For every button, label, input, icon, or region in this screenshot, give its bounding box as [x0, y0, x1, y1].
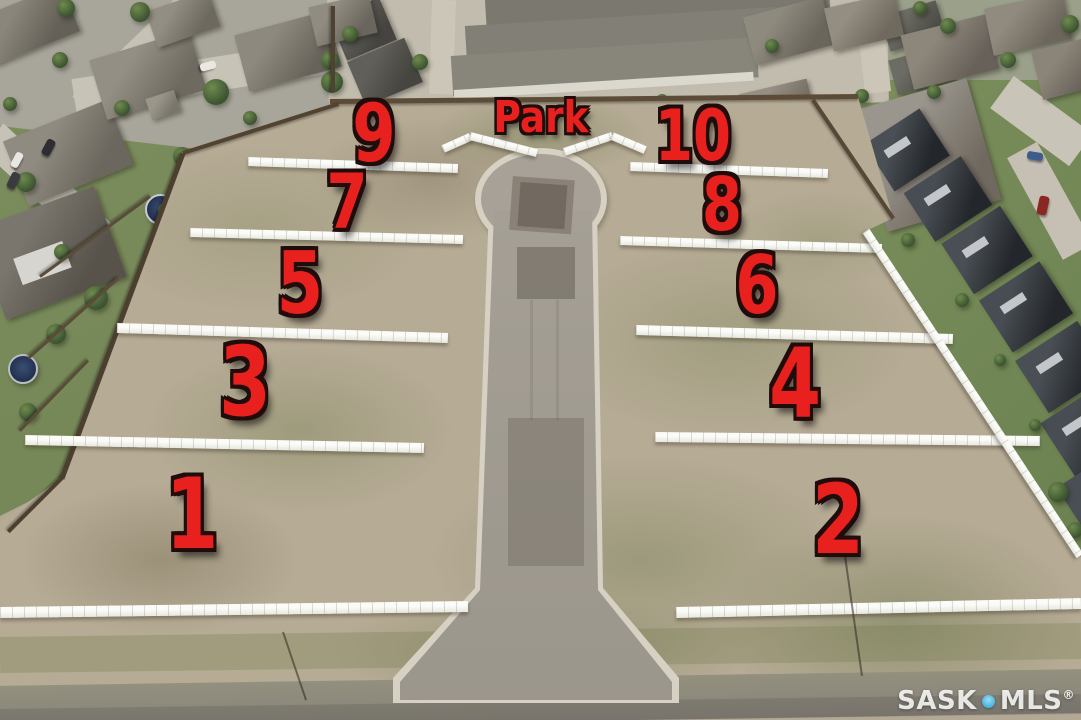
lot-number-4: 4 — [769, 336, 821, 432]
tree — [412, 54, 428, 70]
tree — [1000, 52, 1016, 68]
tree — [913, 1, 927, 15]
tree — [901, 233, 915, 247]
lot-number-1: 1 — [165, 466, 218, 564]
trampoline — [8, 354, 38, 384]
road-patch — [517, 247, 575, 299]
park-label: Park — [494, 96, 589, 140]
sask-mls-watermark: SASK MLS ® — [897, 686, 1075, 716]
tree — [130, 2, 150, 22]
tree — [765, 39, 779, 53]
lot-number-10: 10 — [655, 101, 731, 171]
tree — [52, 52, 68, 68]
tree — [994, 354, 1006, 366]
road-patch — [508, 418, 584, 566]
tree — [342, 26, 358, 42]
lot-number-5: 5 — [277, 241, 324, 327]
lot-number-8: 8 — [702, 168, 742, 242]
tree — [114, 100, 130, 116]
wood-fence — [331, 6, 335, 92]
tree — [940, 18, 956, 34]
sask-text: SASK — [897, 686, 977, 716]
tree — [3, 97, 17, 111]
lot-number-2: 2 — [812, 472, 864, 568]
lot-number-3: 3 — [219, 334, 271, 430]
tree — [1061, 15, 1079, 33]
tree — [1029, 419, 1041, 431]
tree — [243, 111, 257, 125]
tree — [321, 51, 339, 69]
tire-track — [530, 300, 533, 420]
tree — [955, 293, 969, 307]
mls-text: MLS — [1000, 686, 1063, 716]
lot-number-9: 9 — [352, 94, 395, 174]
tree — [203, 79, 229, 105]
lot-number-6: 6 — [735, 246, 778, 326]
tree — [1048, 482, 1068, 502]
mls-dot-icon — [982, 695, 995, 708]
culdesac-island-patch — [517, 182, 567, 229]
tree — [927, 85, 941, 99]
tire-track — [556, 300, 559, 420]
aerial-photo: 1 2 3 4 5 6 7 8 9 10 Park SASK MLS ® — [0, 0, 1081, 720]
registered-mark: ® — [1063, 688, 1076, 702]
